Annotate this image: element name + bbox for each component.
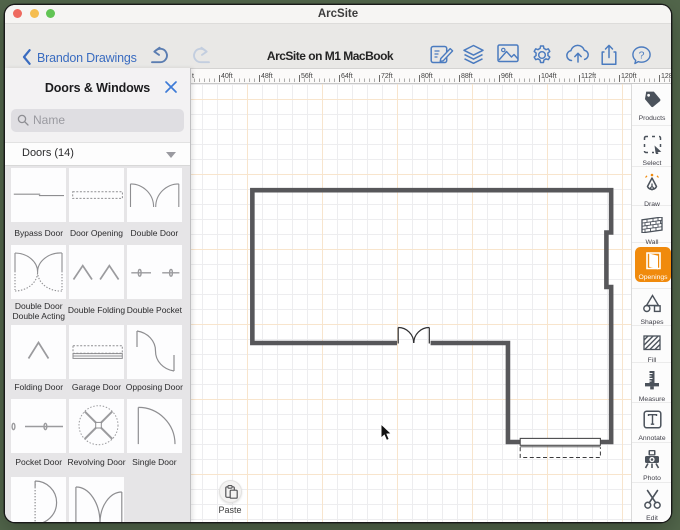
svg-text:40ft: 40ft bbox=[221, 73, 233, 80]
svg-text:128: 128 bbox=[661, 73, 671, 80]
svg-text:96ft: 96ft bbox=[501, 73, 513, 80]
svg-text:88ft: 88ft bbox=[461, 73, 473, 80]
svg-text:72ft: 72ft bbox=[381, 73, 393, 80]
svg-text:64ft: 64ft bbox=[341, 73, 353, 80]
svg-text:112ft: 112ft bbox=[581, 73, 596, 80]
svg-text:t: t bbox=[192, 73, 194, 80]
svg-text:104ft: 104ft bbox=[541, 73, 557, 80]
svg-text:48ft: 48ft bbox=[261, 73, 273, 80]
svg-text:?: ? bbox=[639, 49, 645, 61]
svg-text:120ft: 120ft bbox=[621, 73, 637, 80]
svg-text:80ft: 80ft bbox=[421, 73, 433, 80]
svg-text:56ft: 56ft bbox=[301, 73, 313, 80]
